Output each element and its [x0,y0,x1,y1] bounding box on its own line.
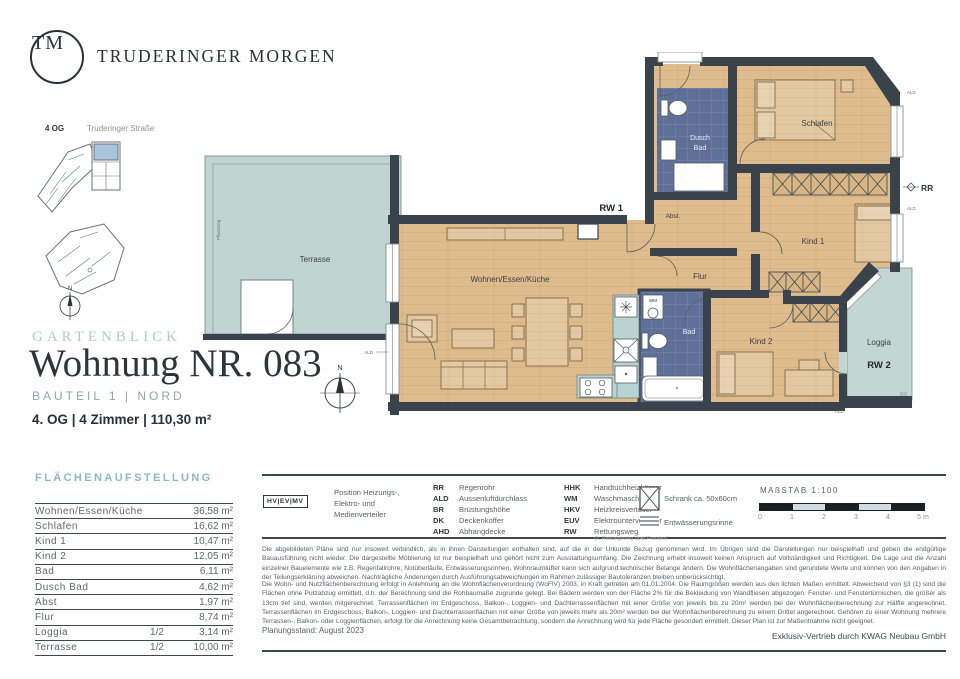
nightstand [841,80,853,92]
room-bad: WM Bad [639,290,709,404]
room-terrasse: Terrasse Pflanztrog [203,156,403,340]
wardrobe-row-b2 [793,302,844,322]
legend-item: RW Rettungsweg (2. Rettungsweg über Fens… [564,528,667,542]
scale-segment [825,503,859,511]
flur-label: Flur [693,272,707,281]
scale-tick: 2 [822,514,826,521]
toilet-tank [661,100,668,116]
schrank-label: Schrank ca. 50x60cm [664,494,737,503]
table-row: Kind 110,47 m² [35,534,233,549]
siteplan-highlight-unit [94,144,118,160]
scale-tick: 1 [790,514,794,521]
row-value: 10,47 m² [175,536,233,547]
row-label: Terrasse [35,642,139,653]
disclaimer-paragraph-2: Die Wohn- und Nutzflächenberechnung erfo… [262,580,946,627]
dining-table [526,298,568,366]
planning-status: Planungsstand: August 2023 [262,626,364,635]
table-row: Flur8,74 m² [35,610,233,625]
logo-initials: TM [32,32,64,54]
ald-label-top: ALD [907,90,917,95]
wardrobe-row-a [773,173,887,195]
distribution-note: Exklusiv-Vertrieb durch KWAG Neubau GmbH [545,631,946,641]
floorplan-compass-n: N [337,365,342,372]
floorplan-document: TM TRUDERINGER MORGEN 4 OG Truderinger S… [0,0,960,679]
bathtub [642,376,706,401]
bad-label: Bad [683,329,696,336]
apartment-summary: 4. OG | 4 Zimmer | 110,30 m² [32,412,211,427]
scale-bar [760,503,925,511]
kind2-label: Kind 2 [750,337,773,346]
row-label: Wohnen/Essen/Küche [35,506,143,517]
scale-segment [891,503,925,511]
terrace-step [241,280,293,334]
brand-logo-icon: TM [30,30,84,84]
chair [570,348,582,361]
siteplan-building-south [46,224,124,294]
row-value: 1,97 m² [175,597,233,608]
legend-term-with-note: Rettungsweg (2. Rettungsweg über Fenster… [594,528,667,542]
schrank-icon [639,486,661,512]
row-value: 4,62 m² [175,582,233,593]
entry-threshold [658,52,702,62]
entwaesserungsrinne-icon [640,516,659,528]
siteplan-street-label: Truderinger Straße [87,124,154,133]
legend-column-1: RRRegenrohr ALDAussenluftdurchlass BRBrü… [433,484,527,539]
pillow [757,112,775,138]
table-row: Terrasse1/210,00 m² [35,641,233,656]
chair [512,348,524,361]
row-value: 12,05 m² [175,551,233,562]
shower [674,163,724,191]
row-label: Abst [35,597,139,608]
legend-item: AHDAbhangdecke [433,528,527,539]
hv-ev-mv-label: Position Heizungs-, Elektro- und Medienv… [334,487,399,520]
row-value: 8,74 m² [175,612,233,623]
table-row: Abst1,97 m² [35,595,233,610]
scale-tick: 3 [854,514,858,521]
area-table-heading: FLÄCHENAUFSTELLUNG [35,472,213,484]
row-label: Bad [35,566,139,577]
floorplan-compass-icon: N [320,365,360,413]
legend-term: Rettungsweg [594,527,638,536]
rr-annotation: RR [903,183,933,193]
wohnen-label: Wohnen/Essen/Küche [470,275,550,284]
hv-label-line1: Position Heizungs-, [334,487,399,498]
armchair-seat [412,320,432,337]
chair [570,304,582,317]
siteplan-compass-n: N [68,286,72,292]
row-label: Flur [35,612,139,623]
stove [580,378,612,397]
schlafen-label: Schlafen [801,119,832,128]
siteplan-floor-label: 4 OG [45,124,64,133]
sofa [441,361,507,389]
hv-label-line3: Medienverteiler [334,509,399,520]
row-value: 36,58 m² [177,506,233,517]
wardrobe-row-b1 [769,272,820,292]
table-row: Dusch Bad4,62 m² [35,580,233,595]
row-label: Kind 2 [35,551,139,562]
divider-top [262,474,946,476]
row-fraction: 1/2 [139,627,175,638]
sink [643,357,657,377]
row-value: 6,11 m² [175,566,233,577]
rw1-label: RW 1 [599,203,623,214]
pillow [857,206,895,220]
rw2-label: RW 2 [867,360,891,371]
legend-abbr: AHD [433,528,459,539]
table-row: Loggia1/23,14 m² [35,626,233,641]
row-label: Schlafen [35,521,139,532]
row-value: 3,14 m² [175,627,233,638]
legend-term: Abhangdecke [459,528,505,539]
rr-label: RR [921,183,933,193]
desk [785,370,833,396]
row-value: 16,62 m² [175,521,233,532]
ald-label-bottom: ALD [835,409,845,414]
toilet [649,334,667,349]
legend-abbr: RW [564,528,594,542]
scale-segment [858,503,892,511]
abst-label: Abst. [666,213,681,220]
row-label: Dusch Bad [35,582,139,593]
row-value: 10,00 m² [175,642,233,653]
dusch-bad-label-2: Bad [694,145,707,152]
area-table: Wohnen/Essen/Küche36,58 m² Schlafen16,62… [35,503,233,656]
room-dusch-bad: Dusch Bad [657,88,728,194]
loggia-label: Loggia [867,338,892,347]
toilet-tank [642,333,648,349]
pillow [719,354,735,394]
divider-bottom [262,650,946,652]
pillow [757,82,775,108]
dusch-bad-label-1: Dusch [690,135,710,142]
scale-tick: 4 [886,514,890,521]
page-subtitle: BAUTEIL 1 | NORD [32,389,185,403]
row-label: Kind 1 [35,536,139,547]
table-row: Kind 212,05 m² [35,550,233,565]
chair [512,326,524,339]
scale-ticks: 0 1 2 3 4 5 m [760,514,936,524]
scale-tick: 5 m [917,514,929,521]
chair [512,304,524,317]
table-row: Wohnen/Essen/Küche36,58 m² [35,504,233,519]
kind1-label: Kind 1 [802,237,825,246]
ald-label-left: ALD [364,350,374,355]
row-label: Loggia [35,627,139,638]
ald-label-mid: ALD [907,206,917,211]
hv-ev-mv-box: HV|EV|MV [263,495,308,508]
desk-chair [799,360,819,370]
ald-annotation-left: ALD [364,350,388,355]
disclaimer-paragraph-1: Die abgebildeten Pläne sind nur insoweit… [262,545,946,582]
hv-label-line2: Elektro- und [334,498,399,509]
table-row: Schlafen16,62 m² [35,519,233,534]
table-row: Bad6,11 m² [35,565,233,580]
scale-tick: 0 [758,514,762,521]
scale-segment [792,503,826,511]
site-plan-map: N [28,134,188,324]
rinne-label: Entwässerungsrinne [664,518,733,527]
sink [661,140,676,160]
chair [570,326,582,339]
terrasse-label: Terrasse [300,255,331,264]
rw-note: (2. Rettungsweg über Fenster) [594,537,667,542]
siteplan-building-west [38,144,98,212]
floor-plan: Terrasse Pflanztrog Loggia RW 2 RR Dusch… [195,52,960,427]
row-fraction: 1/2 [139,642,175,653]
scale-segment [759,503,793,511]
planter-label: Pflanztrog [216,219,221,240]
toilet [669,101,687,116]
scale-label: MAßSTAB 1:100 [760,486,839,495]
wm-label: WM [649,298,657,303]
coffee-table [452,329,494,348]
